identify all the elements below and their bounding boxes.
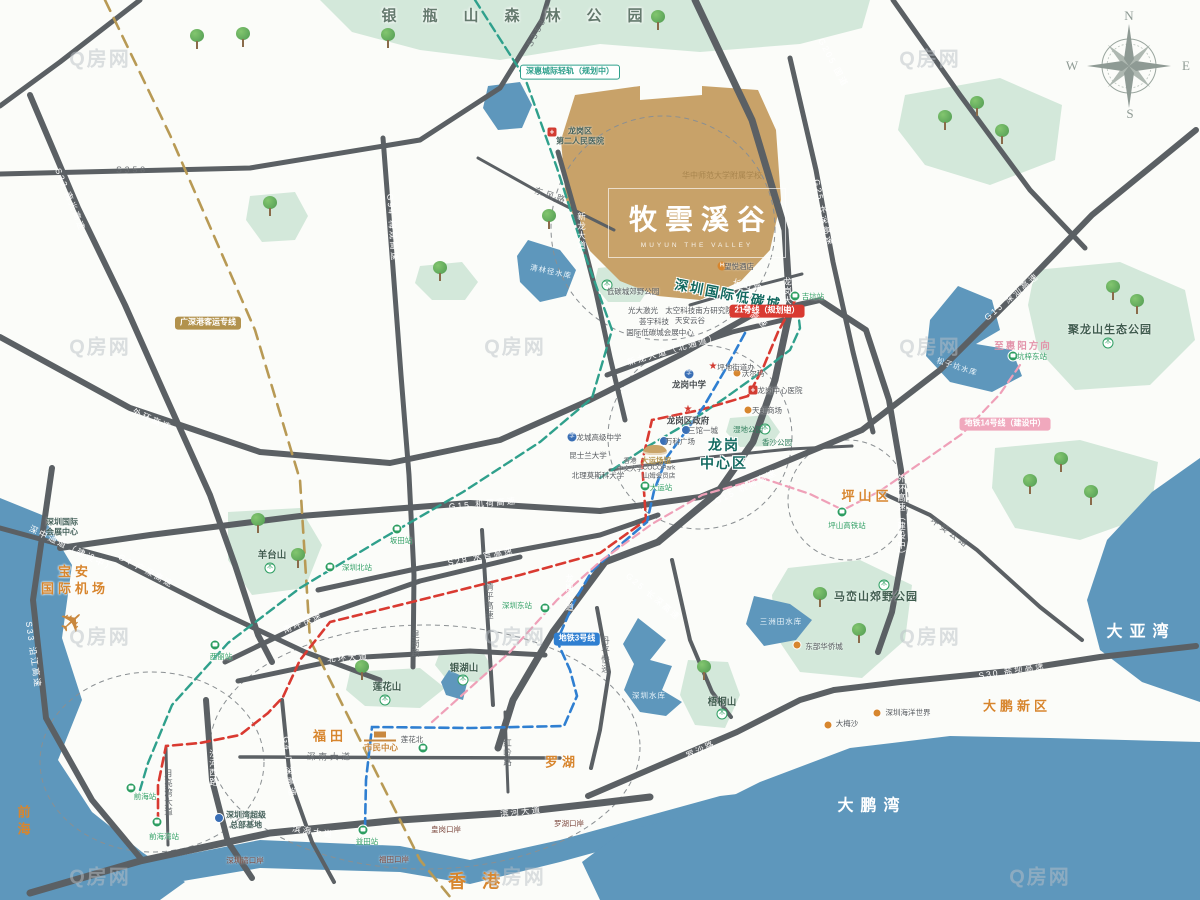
project-logo: 牧雲溪谷 MUYUN THE VALLEY [608, 188, 786, 258]
compass-north: N [1124, 8, 1133, 24]
map-canvas: ★★++学学H木木木木木木木木✈ 银瓶山森林公园深圳国际低碳城龙岗 中心区坪山区… [0, 0, 1200, 900]
project-logo-title: 牧雲溪谷 [621, 198, 773, 238]
compass-rose [1087, 24, 1172, 109]
compass-east: E [1182, 58, 1190, 74]
project-logo-subtitle: MUYUN THE VALLEY [641, 242, 753, 249]
map-graphics [0, 0, 1200, 900]
compass-south: S [1126, 106, 1133, 122]
compass-west: W [1066, 58, 1078, 74]
